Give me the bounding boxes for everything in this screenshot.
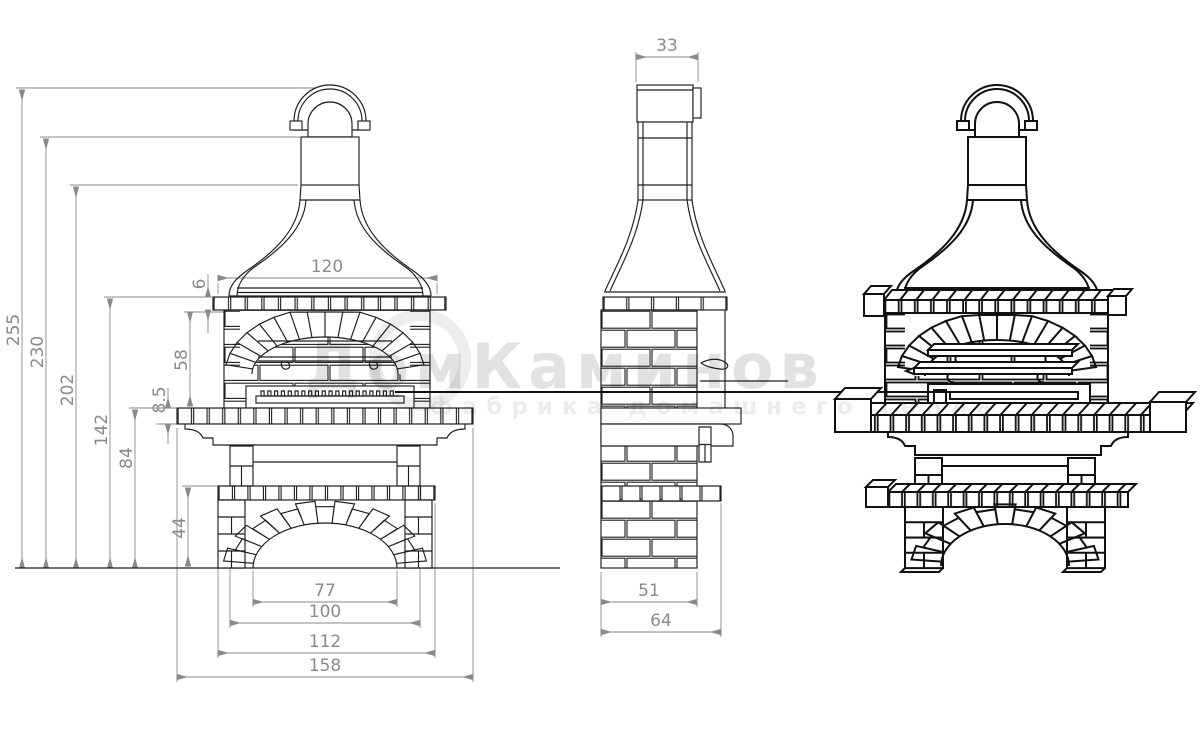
mantel-brick-course — [213, 297, 446, 310]
blueprint-canvas: 255 230 202 142 84 6 58 8.5 44 120 77 10… — [0, 0, 1200, 733]
dim-chimney-depth: 33 — [656, 36, 678, 56]
side-chimney-cap — [637, 85, 701, 122]
dim-base-width: 112 — [309, 632, 341, 652]
dim-counter-width: 158 — [309, 656, 341, 676]
dim-base-depth: 64 — [650, 611, 672, 631]
side-mantel-course — [603, 297, 727, 310]
side-shelf-column — [699, 427, 711, 462]
dim-counter-thickness: 8.5 — [150, 386, 170, 413]
dim-base-section-height: 44 — [170, 517, 190, 539]
watermark-slogan: фабрика домашнего тепла — [430, 394, 1001, 420]
technical-drawing: 255 230 202 142 84 6 58 8.5 44 120 77 10… — [0, 0, 1200, 733]
countertop-course — [177, 408, 473, 424]
dim-mantel-height: 142 — [92, 414, 112, 446]
dim-base-inner-width: 100 — [309, 602, 341, 622]
dim-chimney-base-height: 230 — [28, 336, 48, 368]
watermark-brand: ДомКаминов — [305, 330, 825, 403]
side-flue — [638, 122, 692, 200]
dim-hood-top-height: 202 — [58, 374, 78, 406]
persp-base-course — [866, 480, 1136, 507]
dim-body-depth: 51 — [638, 581, 660, 601]
dim-counter-height: 84 — [117, 447, 137, 469]
dim-arch-opening-width: 77 — [314, 581, 336, 601]
side-molding — [601, 424, 733, 446]
base-brick-course — [218, 486, 435, 500]
persp-mantel-course — [864, 286, 1132, 316]
side-base-course — [601, 486, 721, 501]
dim-total-height: 255 — [4, 314, 24, 346]
dim-mantel-row: 6 — [190, 279, 210, 290]
dim-firebox-height: 58 — [172, 349, 192, 371]
dim-hood-width: 120 — [311, 257, 343, 277]
